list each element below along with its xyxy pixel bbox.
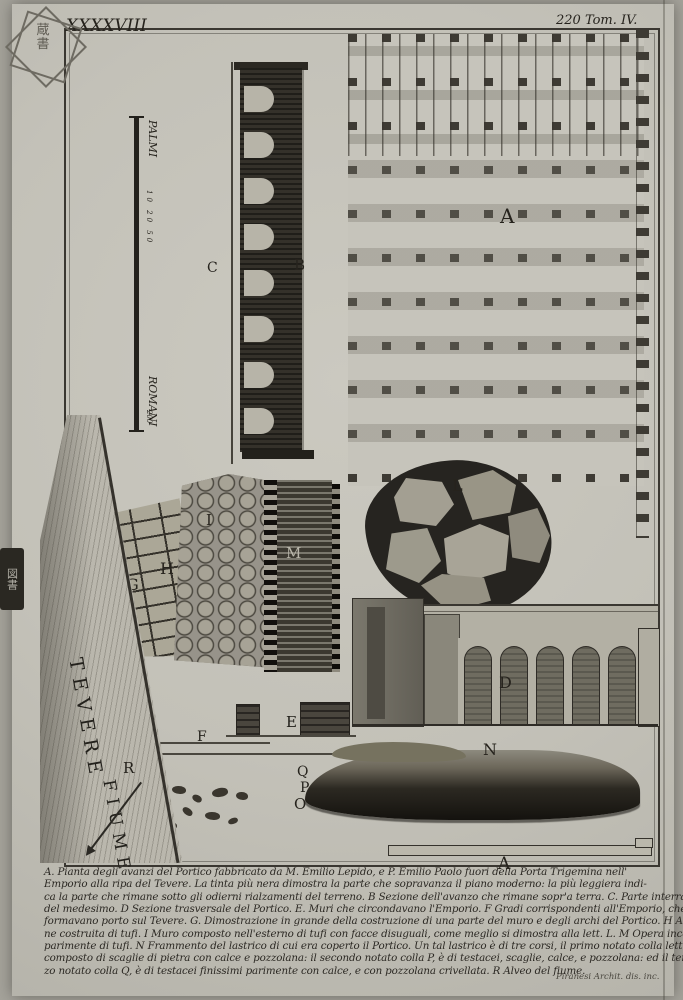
- label-a-plan: A: [500, 206, 514, 226]
- plan-wall-lines: [348, 34, 644, 156]
- caption-line: del medesimo. D Sezione trasversale del …: [44, 903, 662, 915]
- label-i: I: [206, 513, 212, 528]
- step-line: [152, 742, 270, 744]
- arch-opening: [244, 132, 274, 158]
- arch-opening: [464, 646, 492, 726]
- arch-opening: [244, 86, 274, 112]
- step-line: [140, 753, 360, 755]
- arch-opening: [244, 270, 274, 296]
- cut-slab: [367, 607, 385, 719]
- plan-right-pier-row: [636, 30, 649, 538]
- section-foundation: [242, 450, 314, 459]
- rubble-stone: [236, 792, 248, 800]
- caption-line: A. Pianta degli avanzi del Portico fabbr…: [44, 866, 662, 878]
- label-a-bottom: A: [498, 856, 510, 873]
- caption-line: ca la parte che rimane sotto gli odierni…: [44, 891, 662, 903]
- arch-opening: [572, 646, 600, 726]
- arch-opening: [244, 224, 274, 250]
- label-n: N: [483, 742, 497, 758]
- tome-number: 220 Tom. IV.: [556, 14, 637, 27]
- caption-line: composto di scaglie di pietra con calce …: [44, 952, 662, 964]
- label-o: O: [294, 797, 306, 812]
- edge-stamp-glyphs: 図書: [6, 568, 19, 590]
- artist-signature: Piranesi Archit. dis. inc.: [556, 972, 659, 982]
- scale-bar-horizontal: [388, 845, 652, 856]
- collector-seal-icon: 蔵 書: [2, 2, 88, 90]
- transverse-section-d: [352, 598, 658, 732]
- caption-line: formavano porto sul Tevere. G. Dimostraz…: [44, 915, 662, 927]
- emporium-wall-pier: [236, 704, 260, 736]
- rubble-stone: [205, 812, 220, 820]
- arch-opening: [608, 646, 636, 726]
- label-c: C: [207, 261, 218, 275]
- rubble-stone: [172, 786, 186, 794]
- label-r: R: [123, 761, 134, 776]
- scale-ticks: 10 20 50: [145, 190, 152, 245]
- cut-slab: [424, 614, 460, 726]
- scale-unit-palmi: PALMI: [147, 120, 158, 157]
- ground-line: [226, 735, 356, 737]
- arch-opening: [536, 646, 564, 726]
- scale-bar-vertical: [134, 118, 139, 430]
- etching-plate-photo: 蔵 書 図書 XXXXVIII 220 Tom. IV. PALMI 10 20…: [0, 0, 683, 1000]
- arch-opening: [244, 178, 274, 204]
- label-e: E: [286, 715, 297, 730]
- plate-caption: A. Pianta degli avanzi del Portico fabbr…: [44, 866, 662, 977]
- label-m: M: [286, 546, 301, 561]
- header-brick-course: [264, 480, 277, 672]
- label-l: L: [452, 478, 463, 494]
- section-dark-mass: [240, 68, 302, 452]
- caption-line: Emporio alla ripa del Tevere. La tinta p…: [44, 878, 662, 890]
- opus-incertum-core: [277, 480, 332, 672]
- plan-underground-tint: [348, 160, 644, 460]
- pavement-fragment-mound: [305, 750, 640, 820]
- caption-line: ne costruita di tufi. I Muro composto ne…: [44, 928, 662, 940]
- ground-line: [352, 724, 658, 726]
- label-h: H: [160, 561, 174, 577]
- arch-opening: [244, 316, 274, 342]
- label-f: F: [197, 730, 207, 744]
- arcade: [458, 638, 638, 725]
- edge-stamp-icon: 図書: [0, 548, 24, 610]
- label-p: P: [300, 781, 309, 795]
- scale-unit-romani: ROMANI: [147, 376, 158, 426]
- seal-glyphs: 蔵 書: [26, 24, 64, 52]
- section-ground-line: [231, 62, 233, 464]
- label-b: B: [294, 258, 305, 273]
- polygonal-facing-wall: [174, 474, 274, 668]
- cut-wall-mass: [352, 598, 424, 727]
- caption-line: parimente di tufi. N Frammento del lastr…: [44, 940, 662, 952]
- label-d: D: [499, 675, 512, 691]
- arch-opening: [244, 408, 274, 434]
- section-elevation-bc: [222, 62, 322, 464]
- plan-of-portico: [348, 30, 658, 508]
- label-q: Q: [297, 765, 308, 779]
- arch-opening: [244, 362, 274, 388]
- masonry-construction-demo: [112, 468, 340, 673]
- header-brick-course: [332, 484, 340, 672]
- end-pier: [638, 628, 660, 727]
- emporium-wall-pier: [300, 702, 350, 736]
- paper-edge-crease: [663, 0, 665, 1000]
